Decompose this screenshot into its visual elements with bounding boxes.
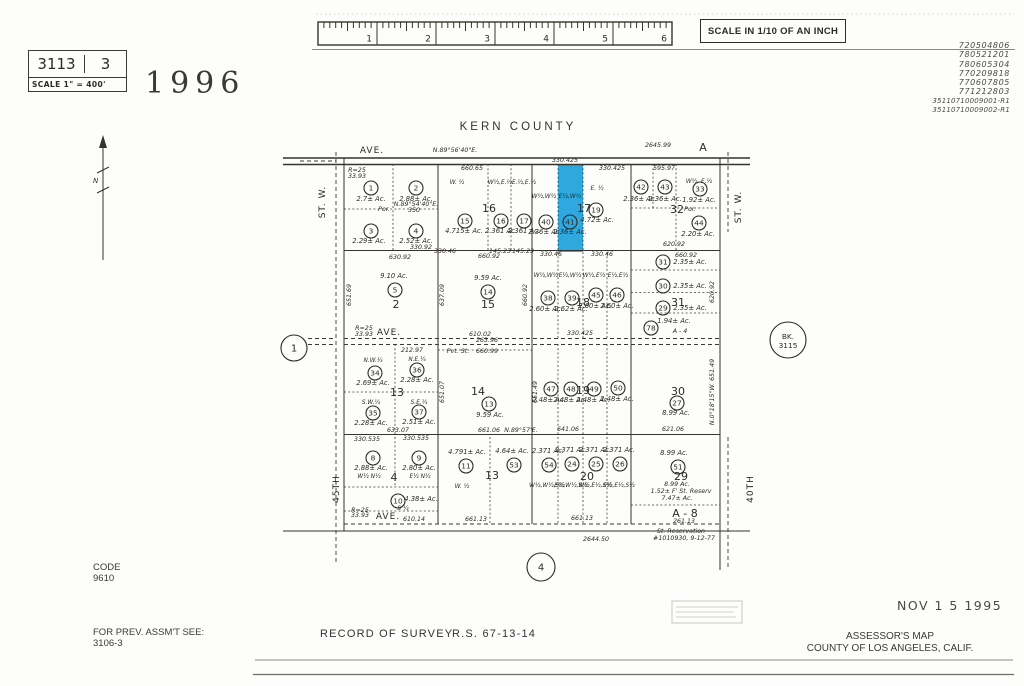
map-dimension-label: W½,E½ (583, 272, 606, 279)
parcel-number: 9 (417, 453, 422, 462)
map-dimension-label: N.89°57'E. (504, 426, 538, 434)
map-dimension-label: E.½,E.½ (512, 179, 536, 186)
map-dimension-label: 620.92 (663, 241, 685, 248)
prev-assessment-label: FOR PREV. ASSM'T SEE: (93, 627, 204, 638)
assessor-line1: ASSESSOR'S MAP (770, 631, 1010, 643)
assessor-map-sheet: 3113 3 SCALE 1" = 400' 1996 SCALE IN 1/1… (0, 0, 1024, 686)
parcel-acreage: 2.20± Ac. (681, 230, 715, 238)
map-dimension-label: 2644.50 (583, 536, 609, 543)
parcel-acreage: 9.10 Ac. (380, 272, 408, 280)
map-dimension-label: Pvt. St. (447, 347, 469, 355)
map-dimension-label: 145.23 (512, 248, 534, 255)
map-dimension-label: 661.13 (465, 516, 487, 523)
parcel-acreage: 4.72± Ac. (580, 216, 614, 224)
date-stamp: NOV 1 5 1995 (897, 598, 1002, 613)
ruler-number: 5 (602, 35, 608, 45)
parcel-acreage: 2.60± Ac. (600, 302, 634, 310)
parcel-acreage: 4.64± Ac. (495, 447, 529, 455)
map-dimension-label: 660.65 (461, 165, 483, 172)
parcel-number: 53 (509, 460, 519, 469)
parcel-number: 25 (591, 459, 601, 468)
parcel-number: 78 (646, 323, 656, 332)
parcel-number: 42 (636, 182, 645, 191)
parcel-number: 34 (370, 368, 380, 377)
parcel-number: 46 (612, 290, 622, 299)
parcel-number: 24 (567, 459, 577, 468)
parcel-number: 36 (412, 365, 422, 374)
parcel-map-drawing: 123456 N N.89°56'40"E.2645.99660.65330.4… (0, 0, 1024, 686)
parcel-acreage: 2.28± Ac. (400, 376, 434, 384)
map-dimension-label: 33.93 (355, 331, 373, 338)
sheet-reference: 1 (291, 344, 297, 355)
parcel-number: 30 (658, 281, 668, 290)
parcel-number: 10 (393, 496, 403, 505)
map-dimension-label: E½ N½ (409, 473, 430, 480)
street-label: AVE. (377, 328, 401, 338)
map-dimension-label: N.0°18'15"W. 651.49 (708, 359, 716, 425)
map-dimension-label: St. Reservation (657, 527, 705, 535)
map-dimension-label: 7.47± Ac. (661, 495, 692, 502)
parcel-acreage: 8.99 Ac. (660, 449, 688, 457)
map-dimension-label: E½,E½,S½ (603, 482, 635, 489)
parcel-number: 49 (589, 384, 599, 393)
map-dimension-label: 330.92 (410, 244, 432, 251)
map-dimension-label: 330.46 (591, 251, 613, 258)
parcel-number: 2 (414, 183, 419, 192)
parcel-number: 8 (371, 453, 376, 462)
map-dimension-label: 330.46 (434, 248, 456, 255)
section-number: 4 (391, 471, 398, 484)
map-dimension-label: Por. (378, 206, 390, 213)
parcel-number: 47 (546, 384, 556, 393)
parcel-number: 26 (615, 459, 625, 468)
map-dimension-label: 330.535 (354, 436, 380, 443)
parcel-number: 29 (658, 303, 668, 312)
assessor-map-title: ASSESSOR'S MAP COUNTY OF LOS ANGELES, CA… (770, 631, 1010, 654)
map-dimension-label: 33.93 (348, 173, 366, 180)
north-arrow-icon: N (93, 135, 109, 260)
map-dimension-label: 595.97 (653, 165, 675, 172)
parcel-acreage: 2.80± Ac. (402, 464, 436, 472)
street-label: ST. W. (734, 191, 744, 224)
map-dimension-label: 637.09 (439, 284, 446, 306)
parcel-number: 37 (414, 407, 424, 416)
map-dimension-label: A - 4 (672, 328, 688, 335)
map-dimension-label: E. ½ (591, 185, 604, 192)
map-dimension-label: 330.535 (403, 435, 429, 442)
map-dimension-label: W. ½ (450, 179, 465, 186)
ruler-number: 2 (425, 35, 431, 45)
map-annotations: N.89°56'40"E.2645.99660.65330.425330.425… (281, 141, 806, 581)
parcel-number: 48 (566, 384, 576, 393)
parcel-acreage: 2.52± Ac. (399, 237, 433, 245)
parcel-acreage: 2.36± Ac. (553, 228, 587, 236)
parcel-acreage: 2.35± Ac. (673, 282, 707, 290)
parcel-acreage: 4.38± Ac. (404, 495, 438, 503)
section-number: 14 (471, 385, 485, 398)
parcel-number: 13 (484, 399, 494, 408)
parcel-acreage: 4.791± Ac. (448, 448, 486, 456)
map-dimension-label: W½,W½ (534, 272, 559, 279)
parcel-number: 15 (460, 216, 470, 225)
parcel-acreage: 9.59 Ac. (474, 274, 502, 282)
section-number: 13 (485, 469, 499, 482)
parcel-acreage: 1.94± Ac. (657, 317, 691, 325)
parcel-acreage: 2.35± Ac. (673, 304, 707, 312)
assessor-line2: COUNTY OF LOS ANGELES, CALIF. (770, 643, 1010, 655)
parcel-number: 5 (393, 285, 398, 294)
parcel-number: 17 (519, 216, 529, 225)
parcel-acreage: 2.35± Ac. (673, 258, 707, 266)
map-dimension-label: 350 (408, 207, 420, 214)
street-label: AVE. (360, 146, 384, 156)
parcel-number: 3 (369, 226, 374, 235)
map-dimension-label: N.W.¼ (364, 358, 383, 364)
parcel-acreage: 9.59 Ac. (476, 411, 504, 419)
map-dimension-label: E½,W½ (559, 193, 582, 200)
map-dimension-label: 660.92 (522, 284, 529, 306)
parcel-acreage: 2.36± Ac. (648, 195, 682, 203)
parcel-acreage: 4.715± Ac. (445, 227, 483, 235)
section-number: A (699, 141, 707, 154)
map-dimension-label: S.W.¼ (362, 400, 381, 406)
map-dimension-label: 263.96 (476, 337, 498, 344)
ruler-number: 4 (543, 35, 549, 45)
map-dimension-label: N.E.¼ (408, 357, 426, 363)
ruler-number: 6 (661, 35, 667, 45)
map-dimension-label: N.89°56'40"E. (433, 146, 478, 154)
section-number: 20 (580, 470, 594, 483)
map-dimension-label: 33.93 (351, 512, 369, 519)
code-label: CODE (93, 562, 120, 573)
parcel-number: 14 (483, 287, 493, 296)
parcel-acreage: 2.371 Ac. (603, 446, 635, 454)
map-dimension-label: 660.92 (478, 253, 500, 260)
map-dimension-label: 330.425 (552, 157, 578, 164)
parcel-number: 33 (695, 184, 705, 193)
book-reference: 3115 (779, 341, 798, 350)
map-dimension-label: 2645.99 (645, 142, 671, 149)
parcel-number: 44 (694, 218, 704, 227)
section-number: 32 (670, 203, 684, 216)
section-number: 13 (390, 386, 404, 399)
record-of-survey-label: RECORD OF SURVEY (320, 628, 453, 640)
code-value: 9610 (93, 573, 120, 584)
map-dimension-label: E½,W½ (559, 272, 582, 279)
map-dimension-label: 620.92 (709, 281, 716, 303)
map-dimension-label: 621.06 (662, 426, 684, 433)
parcel-number: 54 (544, 460, 554, 469)
ruler-number: 3 (484, 35, 490, 45)
book-reference: BK. (782, 332, 794, 341)
parcel-number: 41 (565, 217, 575, 226)
map-dimension-label: 651.69 (346, 284, 353, 306)
parcel-number: 40 (541, 217, 551, 226)
street-label: AVE. (376, 512, 400, 522)
map-dimension-label: #1010930, 9-12-77 (653, 535, 715, 542)
parcel-acreage: 2.51± Ac. (402, 418, 436, 426)
parcel-number: 4 (414, 226, 419, 235)
map-dimension-label: 641.06 (557, 426, 579, 433)
section-number: 2 (393, 298, 400, 311)
map-dimension-label: 661.13 (571, 515, 593, 522)
map-dimension-label: 630.92 (389, 254, 411, 261)
map-dimension-label: 651.07 (439, 381, 446, 403)
ruler-number: 1 (366, 35, 372, 45)
map-dimension-label: W. ½ (455, 483, 470, 490)
parcel-acreage: 1.92± Ac. (682, 196, 716, 204)
parcel-number: 11 (461, 461, 471, 470)
map-dimension-label: Por. (684, 206, 696, 213)
map-dimension-label: 610.14 (403, 516, 425, 523)
parcel-number: 35 (368, 408, 378, 417)
map-dimension-label: 660.99 (476, 348, 498, 355)
parcel-acreage: 2.88± Ac. (354, 464, 388, 472)
parcel-acreage: 8.99 Ac. (662, 409, 690, 417)
parcel-number: 39 (567, 293, 577, 302)
street-label: 45TH (332, 475, 342, 503)
parcel-number: 43 (660, 182, 670, 191)
map-dimension-label: W½ N½ (357, 473, 381, 480)
parcel-acreage: 2.69± Ac. (356, 379, 390, 387)
parcel-number: 1 (369, 183, 374, 192)
parcel-acreage: 2.28± Ac. (354, 419, 388, 427)
parcel-acreage: 2.7± Ac. (356, 195, 385, 203)
map-dimension-label: 330.425 (567, 330, 593, 337)
tax-code-block: CODE 9610 (93, 562, 120, 584)
parcel-number: 50 (613, 383, 623, 392)
faded-stamp (672, 601, 742, 623)
parcel-acreage: 2.48± Ac. (600, 395, 634, 403)
section-number: 29 (674, 470, 688, 483)
parcel-number: 19 (591, 205, 601, 214)
map-dimension-label: W½,E.½ (488, 179, 513, 186)
map-dimension-label: 1.52± F' St. Reserv (651, 487, 712, 495)
map-dimension-label: 212.97 (401, 347, 423, 354)
prev-assessment-block: FOR PREV. ASSM'T SEE: 3106-3 (93, 627, 204, 649)
parcel-number: 16 (496, 216, 506, 225)
map-dimension-label: 633.07 (387, 427, 409, 434)
street-label: 40TH (746, 475, 756, 503)
north-letter: N (93, 177, 99, 185)
street-label: ST. W. (318, 186, 328, 219)
parcel-number: 51 (673, 462, 683, 471)
prev-assessment-value: 3106-3 (93, 638, 204, 649)
parcel-acreage: 2.29± Ac. (352, 237, 386, 245)
survey-number: R.S. 67-13-14 (452, 628, 536, 640)
scale-ruler: 123456 (318, 22, 672, 45)
parcel-number: 31 (658, 257, 668, 266)
map-dimension-label: 661.06 (478, 427, 500, 434)
section-number: 16 (482, 202, 496, 215)
sheet-reference: 4 (538, 563, 544, 574)
parcel-number: 45 (591, 290, 601, 299)
parcel-number: 38 (543, 293, 553, 302)
map-dimension-label: W½,W½ (532, 193, 557, 200)
parcel-number: 27 (672, 398, 682, 407)
section-number: A - 8 (672, 507, 698, 520)
map-dimension-label: E½,E½ (608, 272, 629, 279)
parcel-acreage: 2.88± Ac. (399, 195, 433, 203)
map-dimension-label: 330.425 (599, 165, 625, 172)
section-number: 15 (481, 298, 495, 311)
map-dimension-label: 330.46 (540, 251, 562, 258)
